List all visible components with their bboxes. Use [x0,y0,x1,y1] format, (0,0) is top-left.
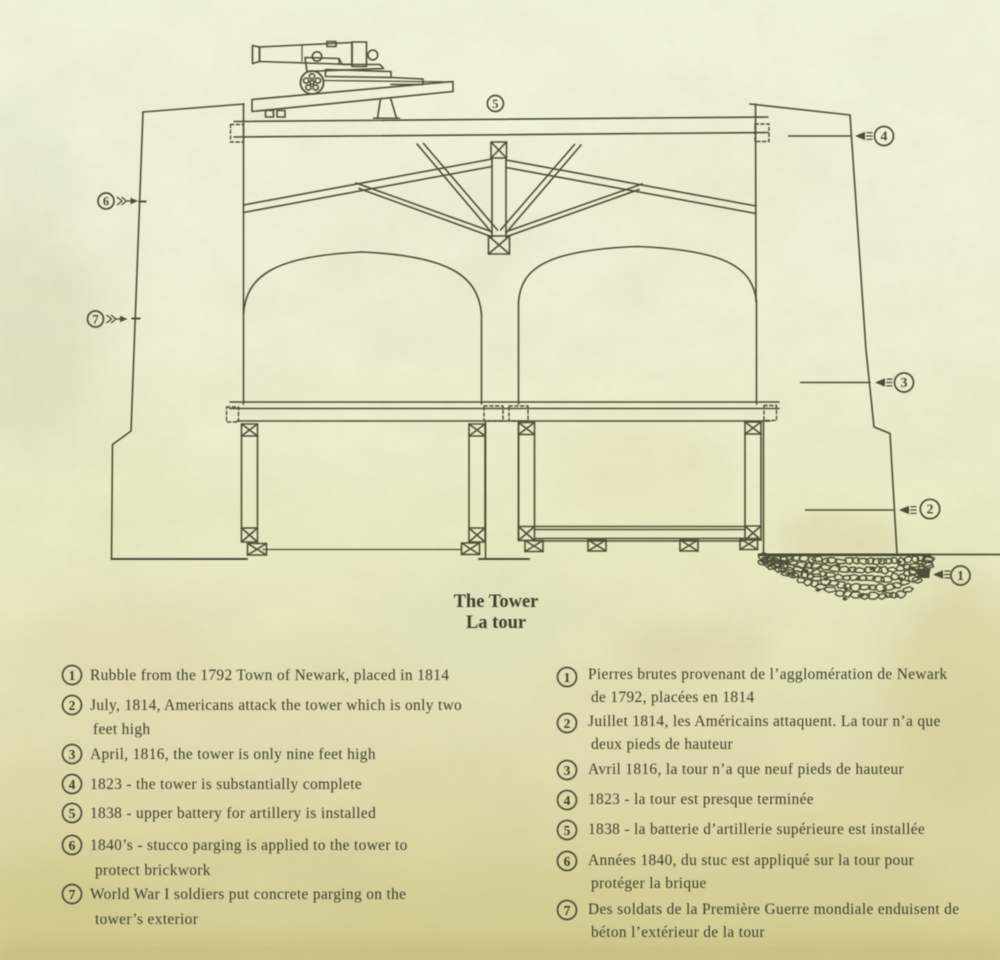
svg-text:Pierres brutes provenant de l’: Pierres brutes provenant de l’agglomérat… [588,666,948,683]
svg-text:1: 1 [564,670,571,685]
svg-text:La tour: La tour [466,613,526,633]
svg-text:2: 2 [564,716,571,731]
svg-text:6: 6 [564,854,571,869]
svg-text:1840’s - stucco parging is app: 1840’s - stucco parging is applied to th… [90,837,408,854]
svg-text:1838 - upper battery for artil: 1838 - upper battery for artillery is in… [90,805,376,822]
svg-text:1823 - la tour est presque ter: 1823 - la tour est presque terminée [588,791,814,808]
svg-text:6: 6 [69,838,76,853]
svg-text:4: 4 [69,777,76,792]
svg-text:Avril 1816, la tour n’a que ne: Avril 1816, la tour n’a que neuf pieds d… [588,761,904,778]
svg-text:feet high: feet high [93,721,150,738]
svg-text:béton l’extérieur de la tour: béton l’extérieur de la tour [591,924,765,941]
svg-text:2: 2 [927,502,934,517]
svg-text:protéger la brique: protéger la brique [591,875,707,892]
svg-text:Des soldats de la Première Gue: Des soldats de la Première Guerre mondia… [588,901,959,918]
svg-text:6: 6 [103,194,109,208]
svg-text:Juillet 1814, les Américains a: Juillet 1814, les Américains attaquent. … [588,713,941,730]
svg-text:World War I soldiers put concr: World War I soldiers put concrete pargin… [90,886,406,903]
svg-text:5: 5 [564,823,571,838]
svg-text:3: 3 [69,747,76,762]
svg-text:4: 4 [881,129,888,144]
svg-text:tower’s exterior: tower’s exterior [95,911,198,928]
svg-text:7: 7 [69,887,76,902]
svg-text:3: 3 [564,763,571,778]
svg-text:4: 4 [564,793,571,808]
svg-text:deux pieds de hauteur: deux pieds de hauteur [591,736,733,753]
svg-text:Années 1840, du stuc est appli: Années 1840, du stuc est appliqué sur la… [588,852,914,869]
svg-text:protect brickwork: protect brickwork [95,862,211,879]
svg-text:1: 1 [957,569,964,584]
svg-text:The Tower: The Tower [454,592,539,612]
svg-text:5: 5 [492,97,498,111]
svg-text:5: 5 [69,806,76,821]
svg-text:July, 1814, Americans attack t: July, 1814, Americans attack the tower w… [90,697,462,714]
svg-text:de 1792, placées en 1814: de 1792, placées en 1814 [591,689,755,706]
svg-text:3: 3 [901,376,908,391]
svg-text:7: 7 [564,903,571,918]
svg-text:Rubble from the 1792 Town of N: Rubble from the 1792 Town of Newark, pla… [90,667,449,684]
svg-text:7: 7 [92,312,98,326]
svg-text:1823 - the tower is substantia: 1823 - the tower is substantially comple… [90,776,362,793]
svg-text:April, 1816, the tower is only: April, 1816, the tower is only nine feet… [90,746,376,763]
svg-text:1838 - la batterie d’artilleri: 1838 - la batterie d’artillerie supérieu… [588,821,925,838]
svg-text:1: 1 [69,668,76,683]
svg-text:2: 2 [69,698,76,713]
